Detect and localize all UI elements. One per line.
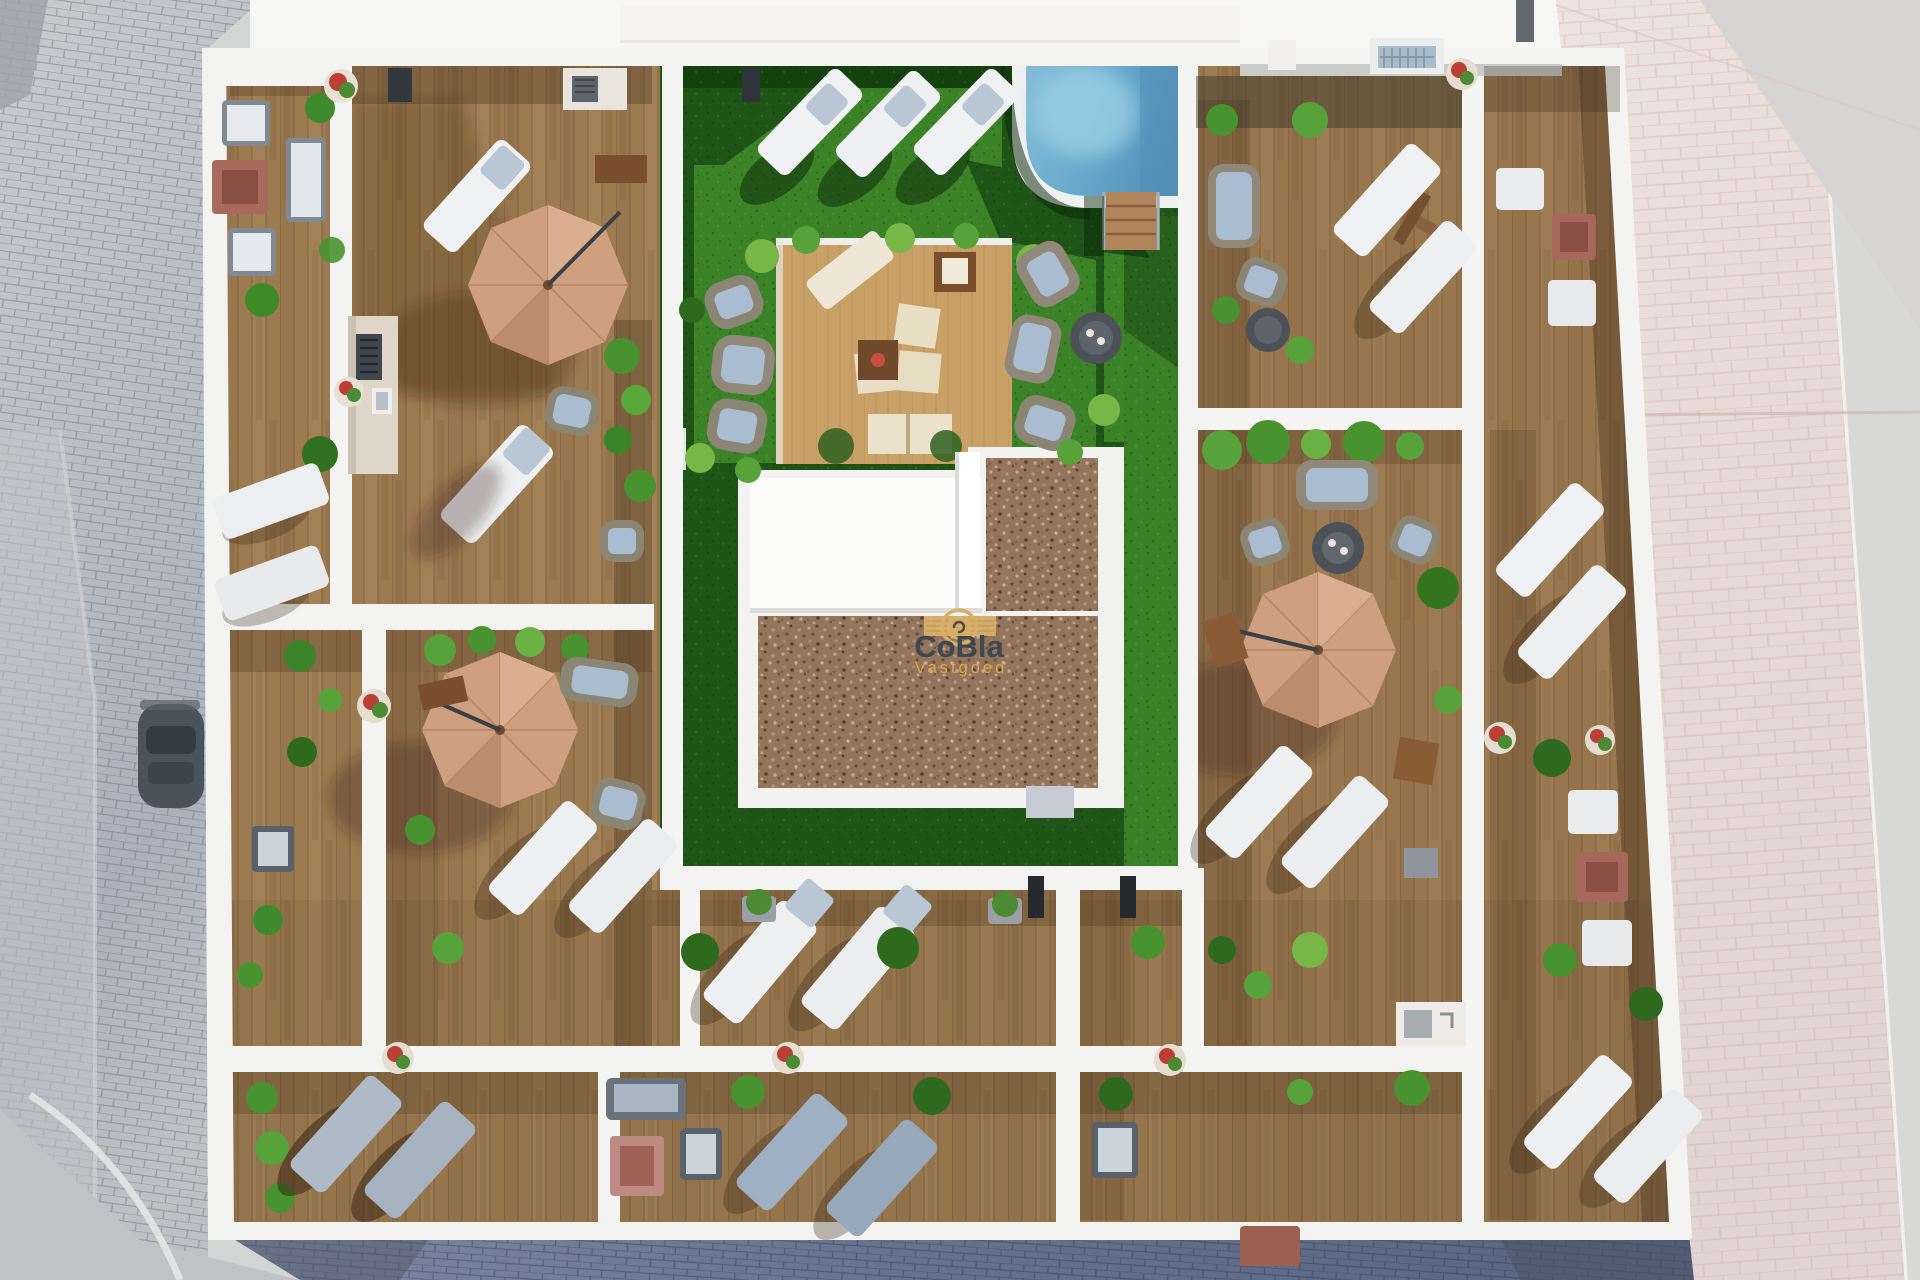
svg-text:Vastgoed: Vastgoed bbox=[915, 659, 1008, 677]
